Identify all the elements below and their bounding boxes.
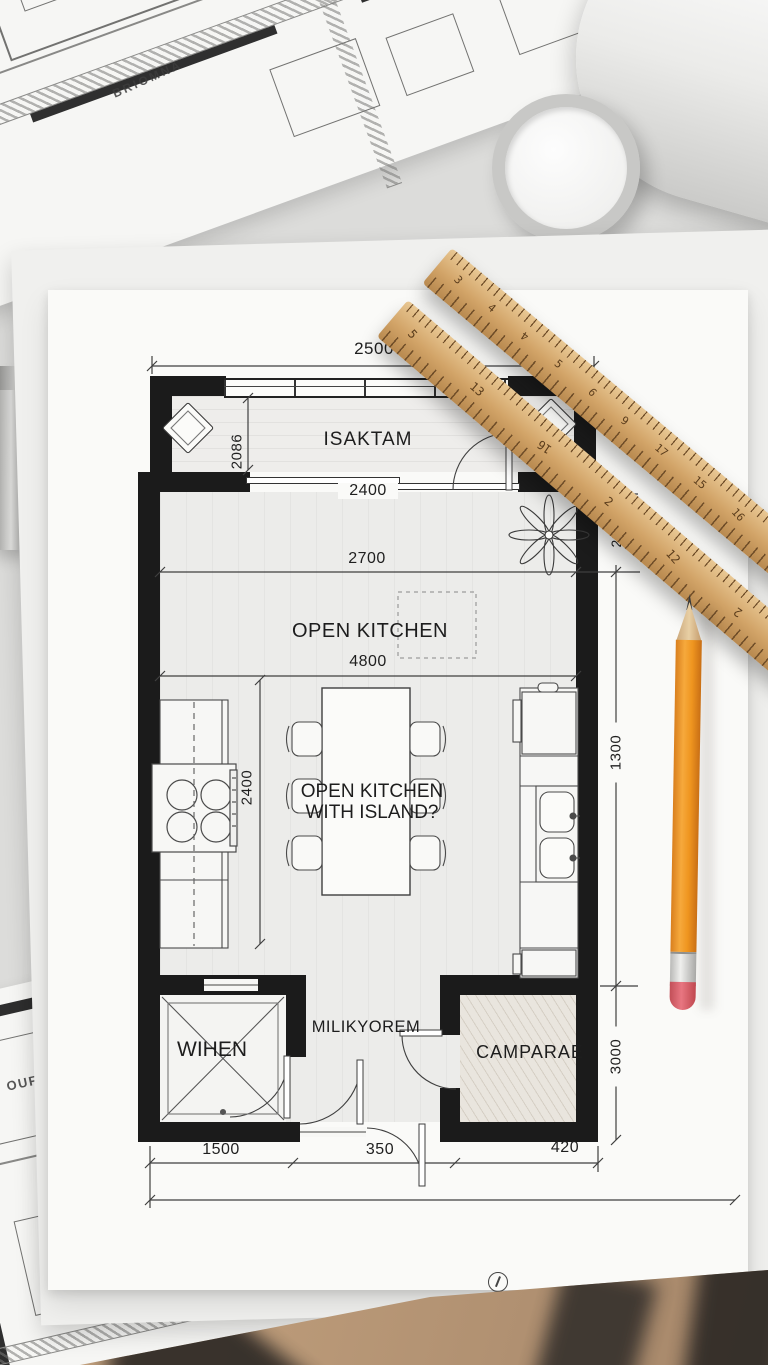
- section-marker-needle: [495, 1276, 501, 1287]
- tape-roll-object: [492, 94, 640, 242]
- wall-segment: [440, 1088, 460, 1142]
- bg-wall-segment: [0, 1191, 17, 1365]
- window-notch: [300, 1127, 366, 1137]
- wall-segment: [286, 975, 306, 1057]
- bg-room-outline: [385, 13, 474, 96]
- dim-bottom-right: 420: [535, 1140, 595, 1156]
- dim-top-room-depth: 2086: [230, 422, 245, 482]
- dim-bottom-left: 1500: [191, 1142, 251, 1158]
- room-label-milikyorem: MILIKYOREM: [286, 1018, 446, 1037]
- pencil-wood-cone: [676, 602, 703, 642]
- island-label-line1: OPEN KITCHEN: [292, 781, 452, 803]
- wall-segment: [138, 1122, 300, 1142]
- island-label-line2: WITH ISLAND?: [292, 802, 452, 824]
- room-label-open-kitchen: OPEN KITCHEN: [290, 620, 450, 643]
- room-label-isaktam: ISAKTAM: [288, 429, 448, 451]
- section-marker-icon: [488, 1272, 508, 1292]
- wall-segment: [454, 975, 598, 995]
- room-label-camparae: CAMPARAE: [460, 1042, 600, 1063]
- window-notch: [204, 979, 258, 991]
- pencil-eraser: [669, 982, 695, 1010]
- room-label-wihen: WIHEN: [152, 1038, 272, 1062]
- pencil-body: [670, 640, 701, 952]
- dim-right-lower: 3000: [609, 1027, 624, 1087]
- dim-left-counter-run: 2400: [240, 758, 255, 818]
- desk-scene: BRIOMNA BTENUBZ HHONUN OUFROR: [0, 0, 768, 1365]
- dim-right-middle: 1300: [609, 723, 624, 783]
- dim-bottom-middle: 350: [350, 1142, 410, 1158]
- dim-window-width: 2400: [338, 483, 398, 499]
- dim-kitchen-lower-width: 4800: [338, 654, 398, 670]
- dim-kitchen-upper-width: 2700: [337, 551, 397, 567]
